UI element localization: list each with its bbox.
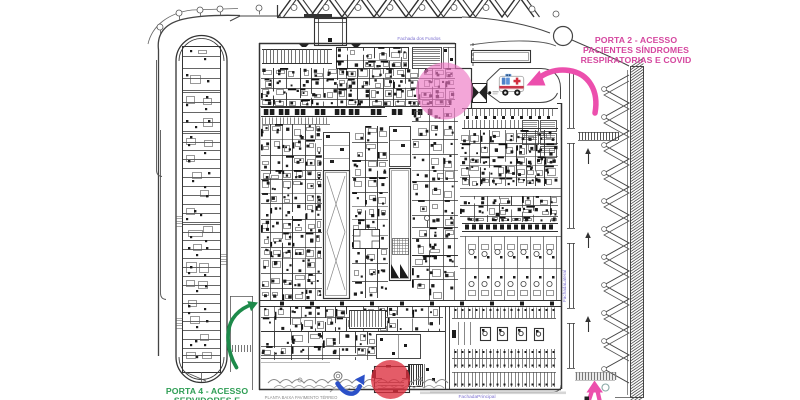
svg-text:PLANTA BAIXA PAVIMENTO TÉRREO: PLANTA BAIXA PAVIMENTO TÉRREO [265,395,338,400]
svg-text:PORTA 4 - ACESSO: PORTA 4 - ACESSO [166,386,249,396]
svg-text:FachadaPrincipal: FachadaPrincipal [458,394,495,400]
svg-text:Fachada dos Fundos: Fachada dos Fundos [397,36,441,41]
svg-text:PORTA 2 - ACESSO: PORTA 2 - ACESSO [595,35,678,45]
svg-text:SERVIDORES E: SERVIDORES E [174,396,240,400]
svg-text:RESPIRATORIAS E COVID: RESPIRATORIAS E COVID [581,55,692,65]
svg-text:FachadaLateral: FachadaLateral [562,270,567,302]
svg-text:PACIENTES SÍNDROMES: PACIENTES SÍNDROMES [583,45,689,55]
